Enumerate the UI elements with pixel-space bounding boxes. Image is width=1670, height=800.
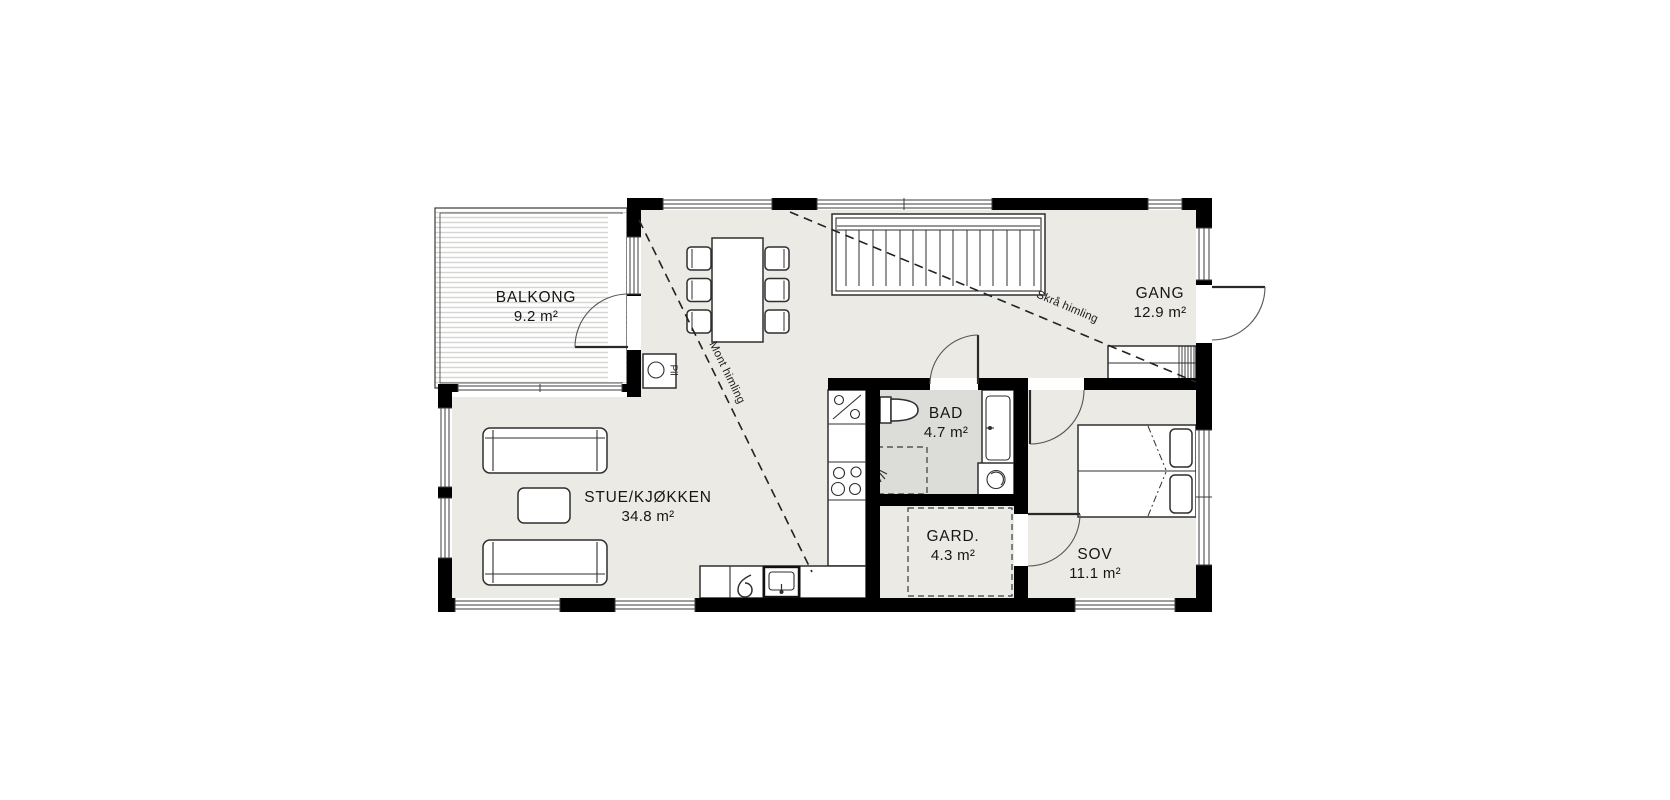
window xyxy=(455,598,560,612)
window xyxy=(1075,598,1175,612)
balcony-edge-strip xyxy=(608,214,626,382)
chair xyxy=(765,279,789,302)
floor-plan-svg: Pil xyxy=(0,0,1670,800)
chair xyxy=(687,279,711,302)
sofa-bottom xyxy=(483,540,607,585)
room-label-balkong: BALKONG xyxy=(496,289,577,306)
window xyxy=(1148,198,1182,210)
floor-plan-page: Pil xyxy=(0,0,1670,800)
entrance-door xyxy=(1196,285,1265,343)
room-label-gard: GARD. xyxy=(926,528,979,545)
room-area-gang: 12.9 m² xyxy=(1134,304,1187,321)
bathroom-sink-icon xyxy=(982,390,1014,466)
chair xyxy=(765,247,789,270)
window xyxy=(817,198,992,210)
room-area-balkong: 9.2 m² xyxy=(514,308,558,325)
room-area-bad: 4.7 m² xyxy=(924,424,968,441)
window xyxy=(438,408,452,487)
room-label-stue-kjokken: STUE/KJØKKEN xyxy=(584,489,712,506)
dining-table-group xyxy=(687,238,789,342)
window xyxy=(1196,228,1212,280)
stairs xyxy=(832,214,1045,295)
window xyxy=(438,498,452,558)
kitchen-sink-icon xyxy=(764,567,799,597)
window xyxy=(458,384,622,392)
pillar-label: Pil xyxy=(668,364,679,375)
sofa-top xyxy=(483,428,607,473)
coffee-table xyxy=(518,488,570,523)
room-area-gard: 4.3 m² xyxy=(931,547,975,564)
room-label-sov: SOV xyxy=(1077,546,1112,563)
chair xyxy=(687,310,711,333)
chair xyxy=(687,247,711,270)
pillar-post: Pil xyxy=(643,354,679,388)
window xyxy=(1196,430,1212,565)
window xyxy=(615,598,695,612)
room-label-gang: GANG xyxy=(1136,285,1185,302)
room-label-bad: BAD xyxy=(929,405,963,422)
room-area-stue-kjokken: 34.8 m² xyxy=(622,508,675,525)
window xyxy=(627,237,641,294)
washing-machine-icon xyxy=(978,463,1014,496)
double-bed-icon xyxy=(1078,425,1196,517)
room-area-sov: 11.1 m² xyxy=(1069,565,1121,582)
window xyxy=(663,198,772,210)
dining-table xyxy=(712,238,763,342)
chair xyxy=(765,310,789,333)
